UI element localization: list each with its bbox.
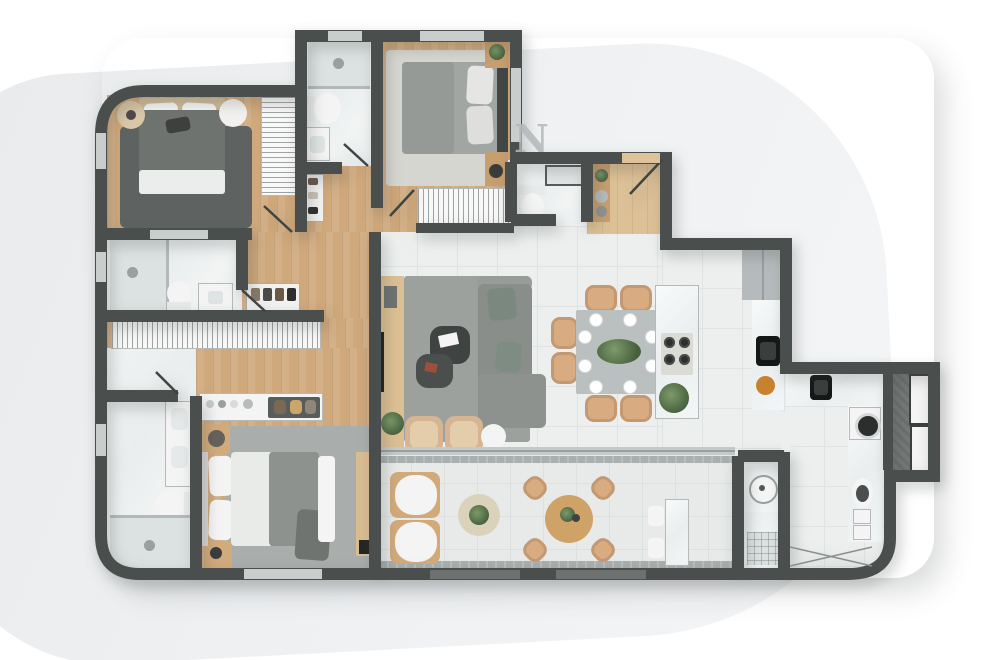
tv-speaker [384,286,397,308]
master-bench [318,456,335,542]
window-terrace-1 [430,570,520,579]
bedroom2-wardrobe [418,189,512,225]
dining-chair-4 [551,352,578,384]
hall-shoe-pair-3 [308,207,318,214]
sofa-cushion-2 [495,341,522,373]
entry-console-plant [595,169,608,182]
sofa-chaise [478,374,546,428]
lounge-chair-2-cushion [395,522,437,562]
tv-screen [378,332,384,392]
place-setting-4 [579,360,591,372]
bathroom1-toilet-bowl [314,93,341,124]
kitchen-service-opening [781,412,791,450]
floor-plan-render: N [0,0,1000,660]
master-bed-headboard [198,452,208,546]
laundry-basket-1 [854,510,870,523]
master-lamp [208,430,225,447]
master-tv [359,540,374,554]
kitchen-sink-basin [760,342,776,360]
master-bath-shower-glass [110,515,192,518]
bedroom1-wardrobe [262,97,298,195]
corridor-shoe-3 [275,288,284,301]
vanity-bottle-4 [243,399,253,409]
armchair-1-cushion [410,421,438,449]
burner-4 [679,354,690,365]
entry-console-bowl [595,190,608,203]
terrace-door-track-line [375,450,735,452]
dining-chair-5 [585,395,617,422]
coffee-table-deco [424,362,437,373]
burner-2 [679,337,690,348]
window-master-bottom [244,569,322,579]
bedroom2-plant [489,44,505,60]
bedroom2-pillow-bottom [466,105,494,144]
service-wc-shower [747,532,778,565]
dining-chair-3 [551,317,578,349]
vanity-bag-2 [290,400,302,414]
vanity-bottle-3 [230,400,238,408]
terrace-side-table [666,500,688,565]
window-bedroom2-top [420,31,484,41]
bedroom2-duvet-fold [402,62,454,154]
bathroom1-shower-head [333,58,344,69]
place-setting-7 [590,381,602,393]
vanity-bag-1 [274,400,286,414]
vanity-bottle-1 [206,400,214,408]
window-bedroom1-left [96,133,106,169]
corridor-shoe-4 [287,288,296,301]
bathroom3-sink-basin [208,291,223,304]
master-bath-shower-head [144,540,155,551]
washing-machine-door [855,413,881,439]
place-setting-1 [590,314,602,326]
social-bath-toilet-bowl [521,193,544,220]
hall-shoe-pair-1 [308,178,318,185]
side-table [481,424,506,449]
lounge-chair-1-cushion [395,475,437,515]
floor-plan-apartment: N [0,0,1000,660]
vanity-bag-3 [305,400,316,414]
living-plant [381,412,404,435]
laundry-sink-basin [814,380,828,395]
entry-console-vase [596,206,607,217]
dining-chair-1 [585,285,617,312]
laundry-basket-2 [854,526,870,539]
dining-centerpiece [597,339,641,364]
dining-chair-2 [620,285,652,312]
master-duvet-white [231,452,273,546]
bedroom1-bed-foot [139,170,225,194]
bedroom1-lamp [126,110,136,120]
watermark-letter: N [514,116,550,161]
corridor-shoe-1 [251,288,260,301]
entry-door-opening [622,153,660,163]
armchair-2-cushion [450,421,478,449]
bathroom1-shower-glass [308,86,370,89]
service-wc-drain [759,485,765,491]
terrace-plant [469,505,489,525]
ac-unit-1 [909,374,933,425]
master-bath-basin-2 [171,446,188,468]
master-bath-basin-1 [171,408,188,430]
window-bathroom1-top [328,31,362,41]
burner-3 [664,354,675,365]
laundry-counter [786,370,886,406]
terrace-table-cup [572,514,580,522]
corridor-shoe-2 [263,288,272,301]
window-bathroom3-left [96,252,106,282]
terrace-border-top [378,456,734,463]
island-plant [659,383,689,413]
laundry-tub-basin [856,485,869,502]
bedroom2-pillow-top [466,65,494,104]
place-setting-8 [624,381,636,393]
dining-chair-6 [620,395,652,422]
terrace-seat-1 [648,506,664,526]
window-bedroom1-south [150,230,208,239]
sofa-cushion-1 [487,287,518,321]
place-setting-3 [579,331,591,343]
master-deco [210,547,222,559]
window-terrace-2 [556,570,646,579]
terrace-seat-2 [648,538,664,558]
bathroom1-sink-basin [310,136,325,153]
window-master-bath-left [96,424,106,456]
bedroom1-nightstand-right [219,99,247,127]
vanity-bottle-2 [218,400,226,408]
burner-1 [664,337,675,348]
place-setting-2 [624,314,636,326]
master-closet-rail [112,320,320,348]
fruit-bowl [756,376,775,395]
bathroom3-toilet-tank [167,302,191,311]
ac-unit-2 [910,425,933,473]
social-bath-sink [545,165,585,186]
bedroom2-headboard [497,60,508,156]
hall-shoe-pair-2 [308,192,318,199]
bedroom2-speaker [489,164,503,178]
fridge-door-line [762,250,764,300]
bathroom3-shower-head [127,267,138,278]
bathroom3-shower [110,240,166,314]
